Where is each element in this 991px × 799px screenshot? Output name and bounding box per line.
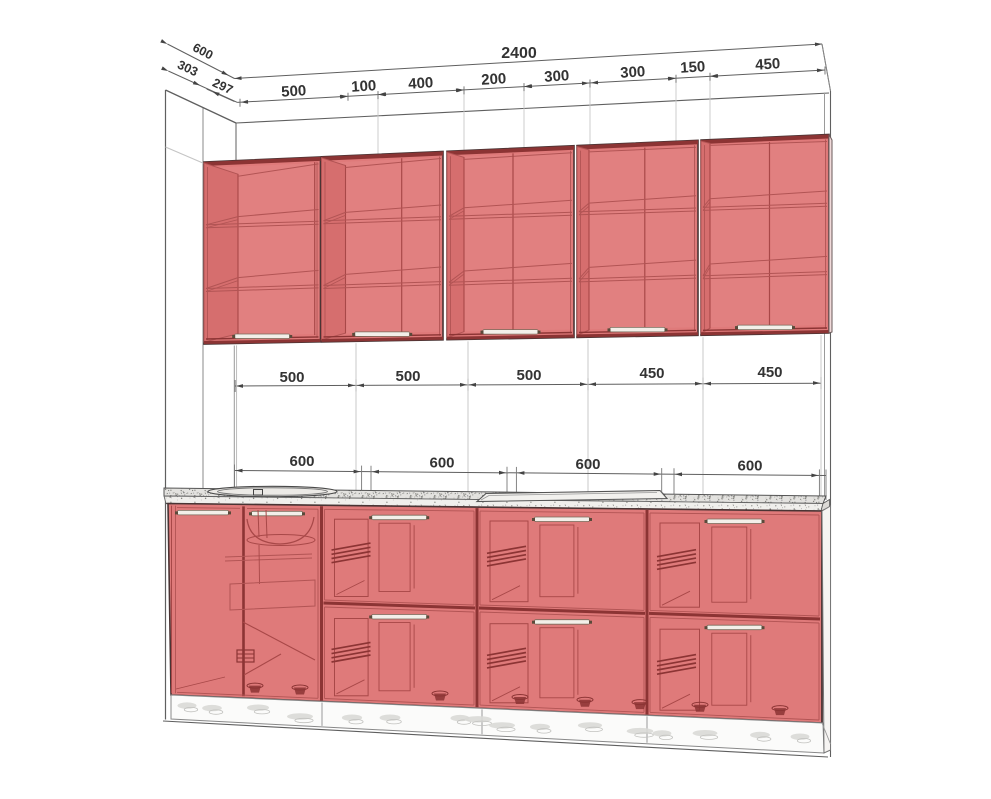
svg-text:300: 300 (620, 63, 646, 81)
svg-text:100: 100 (351, 77, 377, 95)
svg-text:2400: 2400 (501, 45, 537, 62)
svg-text:150: 150 (680, 58, 706, 76)
svg-text:450: 450 (639, 365, 664, 382)
svg-text:500: 500 (281, 82, 307, 100)
svg-text:400: 400 (408, 74, 434, 92)
svg-text:500: 500 (516, 367, 541, 384)
svg-text:500: 500 (279, 369, 304, 386)
svg-text:600: 600 (575, 456, 600, 473)
svg-text:450: 450 (757, 364, 782, 381)
svg-text:300: 300 (544, 67, 570, 85)
svg-text:500: 500 (395, 368, 420, 385)
svg-text:600: 600 (429, 455, 454, 472)
svg-text:450: 450 (755, 55, 781, 73)
svg-text:200: 200 (481, 70, 507, 88)
svg-text:600: 600 (289, 453, 314, 470)
svg-text:600: 600 (737, 458, 762, 475)
